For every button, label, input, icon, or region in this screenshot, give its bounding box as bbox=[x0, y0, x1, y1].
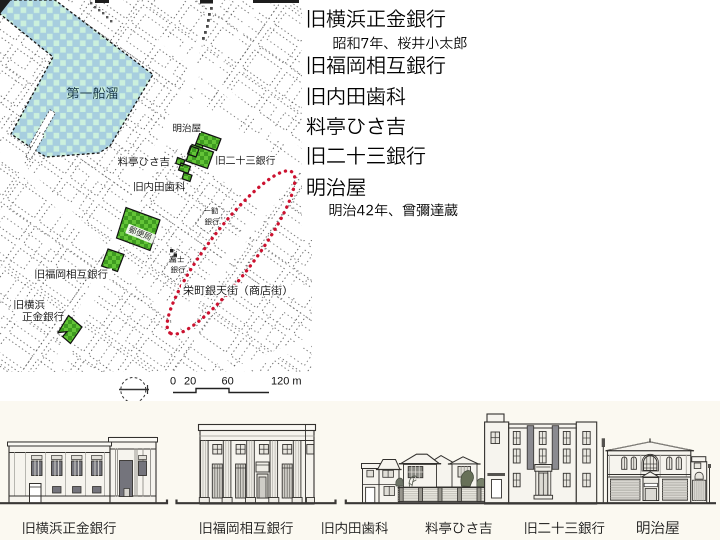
svg-text:0: 0 bbox=[170, 376, 176, 388]
svg-text:20: 20 bbox=[184, 376, 196, 388]
svg-text:120 m: 120 m bbox=[271, 376, 302, 388]
svg-text:60: 60 bbox=[222, 376, 234, 388]
